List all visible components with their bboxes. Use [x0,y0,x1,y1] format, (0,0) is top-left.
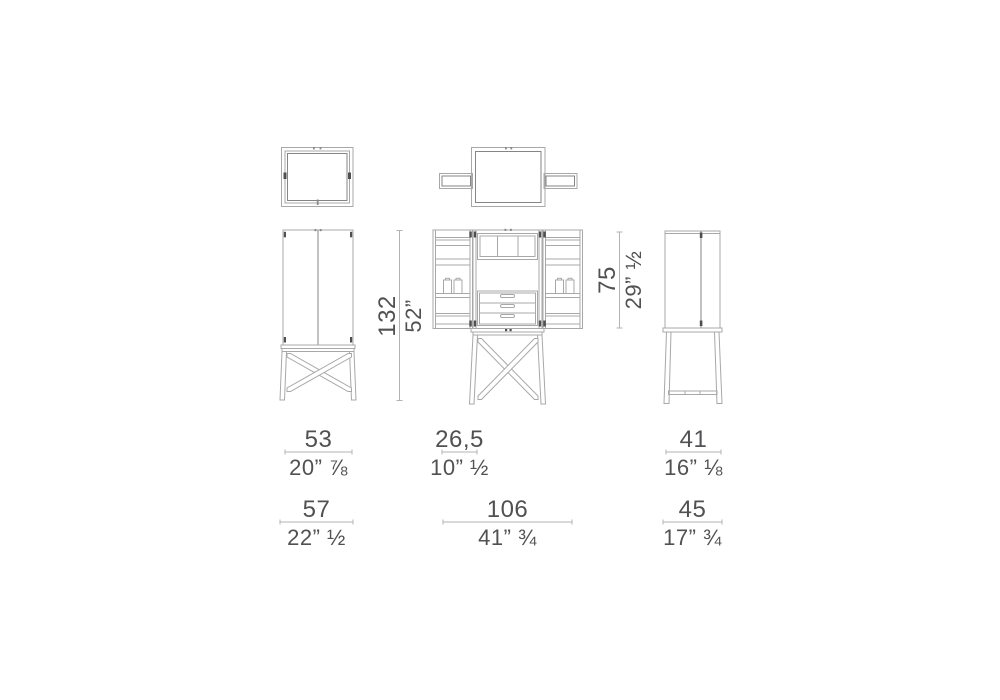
door-bottles [556,278,575,293]
cabinet-dimension-drawing: 132 52” 75 29” ½ 53 20” ⅞ 26,5 10” ½ [0,0,1000,700]
drawer-unit [478,291,538,326]
dim-height-closed: 132 52” [374,231,426,401]
dim-cm-label: 57 [303,496,331,523]
door-shelf [546,238,581,246]
door-shelf [546,314,581,325]
dim-in-label: 52” [401,299,426,332]
left-leg [470,335,478,404]
dim-in-label: 20” ⅞ [289,455,348,480]
right-leg [350,352,357,401]
base-plate [471,329,544,333]
top-view-closed [282,147,354,207]
door-shelf [436,314,471,325]
door-shelf [546,294,581,298]
dim-depth-tray: 26,5 10” ½ [430,426,489,480]
dim-cm-label: 75 [594,266,621,294]
drawer-handle [501,315,515,318]
left-leg [664,332,671,404]
right-open-door [543,230,583,329]
dim-in-label: 10” ½ [430,455,489,480]
left-leg [280,352,287,401]
technical-drawing-page: 132 52” 75 29” ½ 53 20” ⅞ 26,5 10” ½ [0,0,1000,700]
dim-in-label: 29” ½ [621,251,646,310]
base-plate [663,328,722,332]
dim-cm-label: 106 [487,496,529,523]
right-leg [715,332,723,404]
dim-height-open: 75 29” ½ [594,232,646,328]
leg-frame [470,332,546,404]
base-plate [281,345,355,349]
door-shelf [436,294,471,298]
dim-cm-label: 26,5 [435,426,484,453]
dim-depth-cabinet: 41 16” ⅛ [664,426,723,480]
door-shelf [546,259,581,265]
cabinet-box [665,231,720,328]
cabinet-body-open [473,229,542,331]
front-view-open [433,229,583,404]
side-view [663,231,722,404]
dim-cm-label: 132 [374,295,401,337]
door-shelf [436,259,471,265]
stretcher-bar [669,391,718,395]
dim-in-label: 17” ¾ [663,525,722,550]
drawer-handle [501,295,515,298]
leg-frame [664,332,722,404]
dim-cm-label: 45 [679,496,707,523]
upper-cubbies [478,234,538,260]
right-leg [538,335,546,404]
dim-in-label: 16” ⅛ [664,455,723,480]
dim-width-base: 57 22” ½ [280,496,353,550]
drawer-handle [501,305,515,308]
hinge-mark-right [348,173,351,180]
leg-frame [280,349,356,401]
hinge-mark-left [284,173,287,180]
left-open-door [433,230,473,329]
dim-in-label: 41” ¾ [478,525,537,550]
dim-in-label: 22” ½ [287,525,346,550]
dim-cm-label: 41 [680,426,708,453]
dim-width-open: 106 41” ¾ [443,496,572,550]
top-view-open [440,147,578,207]
dim-width-cabinet: 53 20” ⅞ [285,426,352,480]
front-view-closed [280,229,356,400]
door-shelf [436,238,471,246]
door-bottles [444,278,463,293]
dim-cm-label: 53 [305,426,333,453]
latch-mark-bottom [317,200,319,206]
left-tray [440,174,473,189]
dim-depth-base: 45 17” ¾ [663,496,722,550]
right-tray [544,174,577,189]
